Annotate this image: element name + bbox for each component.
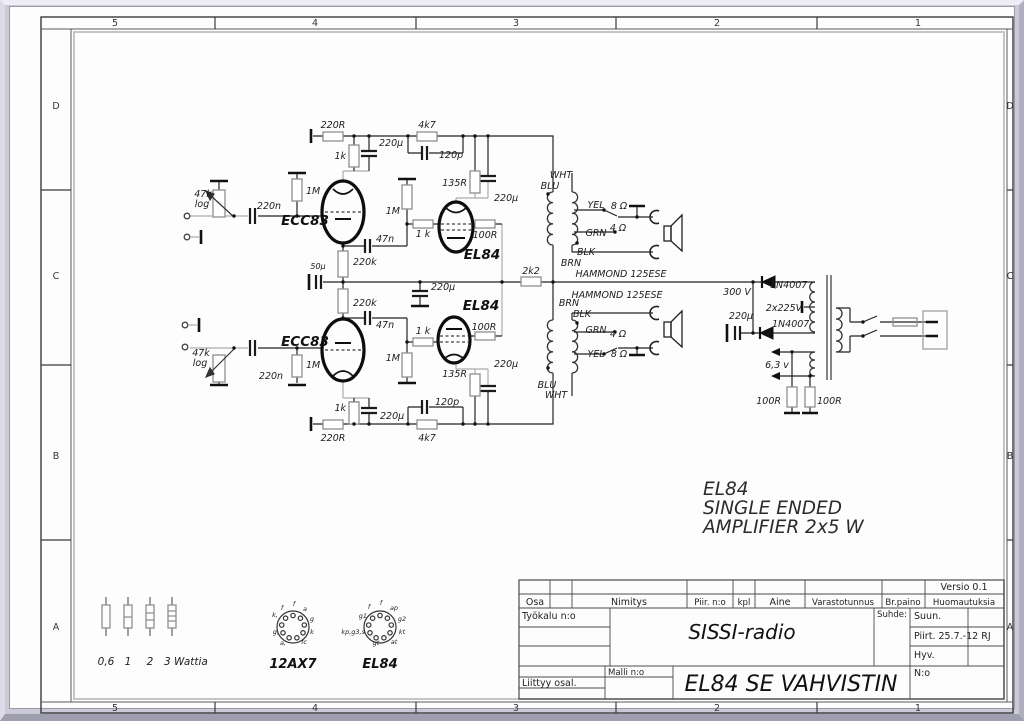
zones-label: A [53, 622, 60, 633]
components-label: ECC83 [281, 213, 329, 229]
piirt-initials: RJ [981, 631, 990, 642]
labels-layer: 5432154321DCBADCBA47klog220n1MECC83220R1… [52, 18, 1013, 714]
components-label: 50µ [310, 262, 325, 271]
components-label: 220µ [494, 359, 518, 370]
components-label: EL84 [463, 298, 500, 314]
components-label: 220k [353, 298, 377, 309]
zones-label: 4 [312, 18, 318, 29]
components-label: 47n [376, 234, 394, 245]
versio: Versio 0.1 [940, 582, 987, 593]
col-piir-no: Piir. n:o [694, 598, 726, 608]
components-label: 220µ [729, 311, 753, 322]
suun: Suun. [914, 611, 941, 622]
pins-label: f [368, 603, 372, 611]
piirt-date: Piirt. 25.7.-12 [914, 631, 978, 642]
pins-label: ap [390, 604, 398, 612]
components-label: 220R [321, 433, 346, 444]
drawing-sheet: Versio 0.1 Osa Nimitys Piir. n:o kpl Ain… [0, 0, 1024, 721]
wire [219, 136, 926, 424]
legend-label: 2 [147, 656, 154, 668]
anno-label: EL84 [703, 479, 749, 500]
components-label: 220n [257, 201, 281, 212]
components-label: BRN [559, 298, 579, 309]
components-label: 135R [442, 369, 467, 380]
col-huomautuksia: Huomautuksia [933, 598, 995, 608]
pins-label: g, [273, 628, 279, 636]
col-aine: Aine [769, 597, 790, 608]
col-nimitys: Nimitys [611, 597, 647, 608]
components-label: BLK [577, 247, 596, 258]
pins-label: k [310, 628, 314, 636]
pins-label: g2 [398, 615, 406, 623]
anno-label: SINGLE ENDED [703, 498, 842, 519]
input-jack-icon [182, 213, 199, 350]
schematic-canvas: Versio 0.1 Osa Nimitys Piir. n:o kpl Ain… [5, 5, 1024, 721]
components-label: 220µ [431, 282, 455, 293]
zones-label: C [1007, 271, 1014, 282]
pins-label: at [391, 638, 398, 646]
zones-label: B [1007, 451, 1014, 462]
components-label: 1M [306, 360, 320, 371]
zones-label: 1 [915, 18, 921, 29]
mains-plug-icon [923, 311, 947, 349]
components-label: 220µ [379, 138, 403, 149]
components-label: 1M [386, 353, 400, 364]
components-label: YEL [587, 200, 604, 211]
pins-label: gt [373, 639, 380, 647]
components-label: GRN [585, 325, 606, 336]
legend-label: 1 [125, 656, 132, 668]
pins-label: g1 [359, 612, 367, 620]
components-label: BLU [541, 181, 560, 192]
malli: Malli n:o [608, 668, 644, 678]
components-label: 1N4007 [770, 280, 807, 291]
tubename-label: EL84 [362, 657, 397, 672]
col-kpl: kpl [738, 598, 751, 608]
zones-label: 1 [915, 703, 921, 714]
components-label: WHT [545, 390, 569, 401]
components-label: 120p [439, 150, 463, 161]
zones-label: B [53, 451, 60, 462]
pins-label: kt [399, 628, 406, 636]
components-label: 1M [386, 206, 400, 217]
components-label: 220µ [494, 193, 518, 204]
suhde: Suhde: [877, 610, 907, 620]
mains-icons [893, 311, 947, 349]
components-label: 120p [435, 397, 459, 408]
pins-label: kp,g3,s [341, 628, 365, 636]
capacitor-plates [250, 146, 740, 414]
pins-label: fc [301, 638, 307, 646]
drawing-title: EL84 SE VAHVISTIN [684, 672, 897, 697]
legend-label: 0,6 [98, 656, 115, 668]
components-label: 6,3 v [765, 360, 789, 371]
components-label: 100R [756, 396, 781, 407]
components-label: 2x225V [766, 303, 804, 314]
components-label: 1 k [416, 326, 431, 337]
components-label: 220n [259, 371, 283, 382]
components-label: BRN [561, 258, 581, 269]
components-label: 1 k [416, 229, 431, 240]
components-label: WHT [550, 170, 574, 181]
components-label: 100R [473, 230, 498, 241]
col-osa: Osa [526, 597, 544, 608]
components-label: 4k7 [418, 433, 436, 444]
components-label: EL84 [464, 247, 501, 263]
anno-label: AMPLIFIER 2x5 W [702, 517, 864, 538]
components-label: 100R [817, 396, 842, 407]
zones-label: 2 [714, 18, 720, 29]
zones-label: 5 [112, 18, 118, 29]
zones-label: 4 [312, 703, 318, 714]
liittyy: Liittyy osal. [522, 678, 577, 689]
pins-label: f [293, 600, 297, 608]
components-label: log [193, 358, 207, 369]
components-label: 1M [306, 186, 320, 197]
zones-label: 5 [112, 703, 118, 714]
components-label: ECC83 [281, 334, 329, 350]
pins-label: f [281, 604, 285, 612]
col-br-paino: Br.paino [885, 598, 920, 608]
col-varastotunnus: Varastotunnus [812, 598, 875, 608]
components-label: 1k [334, 403, 346, 414]
components-label: 100R [472, 322, 497, 333]
components-label: 300 V [723, 287, 752, 298]
no: N:o [914, 668, 930, 679]
components-label: 220k [353, 257, 377, 268]
zones-label: C [53, 271, 60, 282]
pins-label: a [303, 605, 307, 613]
zones-label: A [1007, 622, 1014, 633]
zones-label: 2 [714, 703, 720, 714]
components-label: 220µ [380, 411, 404, 422]
legend-symbols [102, 597, 396, 643]
hyv: Hyv. [914, 650, 935, 661]
pot-wiper-icon [206, 191, 234, 377]
pins-label: g [310, 615, 314, 623]
zones-label: D [52, 101, 59, 112]
components-label: log [195, 199, 209, 210]
title-block: Versio 0.1 Osa Nimitys Piir. n:o kpl Ain… [519, 580, 1004, 699]
pins-label: k, [272, 611, 278, 619]
components-label: 135R [442, 178, 467, 189]
components-label: HAMMOND 125ESE [571, 290, 662, 301]
components-label: 8 Ω [611, 349, 628, 360]
components-label: 2k2 [522, 266, 540, 277]
zones-label: D [1006, 101, 1013, 112]
legend-label: 3 Wattia [164, 656, 208, 668]
components-label: 220R [321, 120, 346, 131]
components-label: 4 Ω [610, 223, 627, 234]
components-label: GRN [585, 228, 606, 239]
power-transformer-icon [810, 275, 842, 380]
components-label: 47n [376, 320, 394, 331]
zones-label: 3 [513, 703, 519, 714]
drawing-frame [41, 17, 1013, 713]
components-label: YEL [587, 349, 604, 360]
components-label: BLK [573, 309, 592, 320]
components-label: HAMMOND 125ESE [575, 269, 666, 280]
components-label: 1N4007 [772, 319, 809, 330]
components-label: 4 Ω [610, 329, 627, 340]
components-label: 4k7 [418, 120, 436, 131]
components-label: 1k [334, 151, 346, 162]
components-label: 8 Ω [611, 201, 628, 212]
tyokalu: Työkalu n:o [521, 611, 576, 622]
el84-bottom [438, 317, 470, 363]
el84-top [439, 202, 473, 252]
tubename-label: 12AX7 [269, 657, 317, 672]
zones-label: 3 [513, 18, 519, 29]
project-name: SISSI-radio [688, 620, 795, 644]
pins-label: f [380, 599, 384, 607]
pins-label: a, [280, 639, 286, 647]
